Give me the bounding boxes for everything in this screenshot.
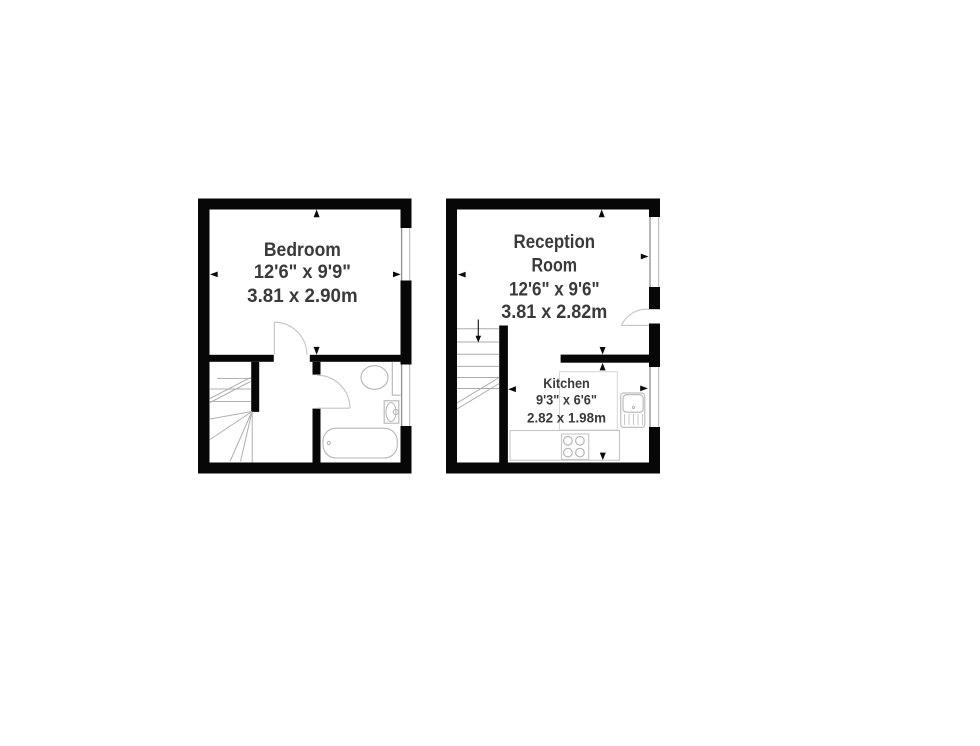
- svg-text:3.81 x 2.82m: 3.81 x 2.82m: [501, 301, 607, 323]
- svg-text:3.81 x 2.90m: 3.81 x 2.90m: [247, 285, 358, 307]
- svg-text:12'6" x 9'6": 12'6" x 9'6": [509, 279, 600, 301]
- svg-text:12'6" x 9'9": 12'6" x 9'9": [254, 261, 351, 283]
- svg-text:9'3" x 6'6": 9'3" x 6'6": [536, 391, 597, 407]
- svg-text:Reception: Reception: [514, 231, 596, 253]
- svg-text:2.82 x 1.98m: 2.82 x 1.98m: [527, 409, 606, 425]
- svg-text:Kitchen: Kitchen: [543, 375, 590, 391]
- svg-text:Bedroom: Bedroom: [264, 239, 341, 261]
- svg-text:Room: Room: [532, 254, 578, 276]
